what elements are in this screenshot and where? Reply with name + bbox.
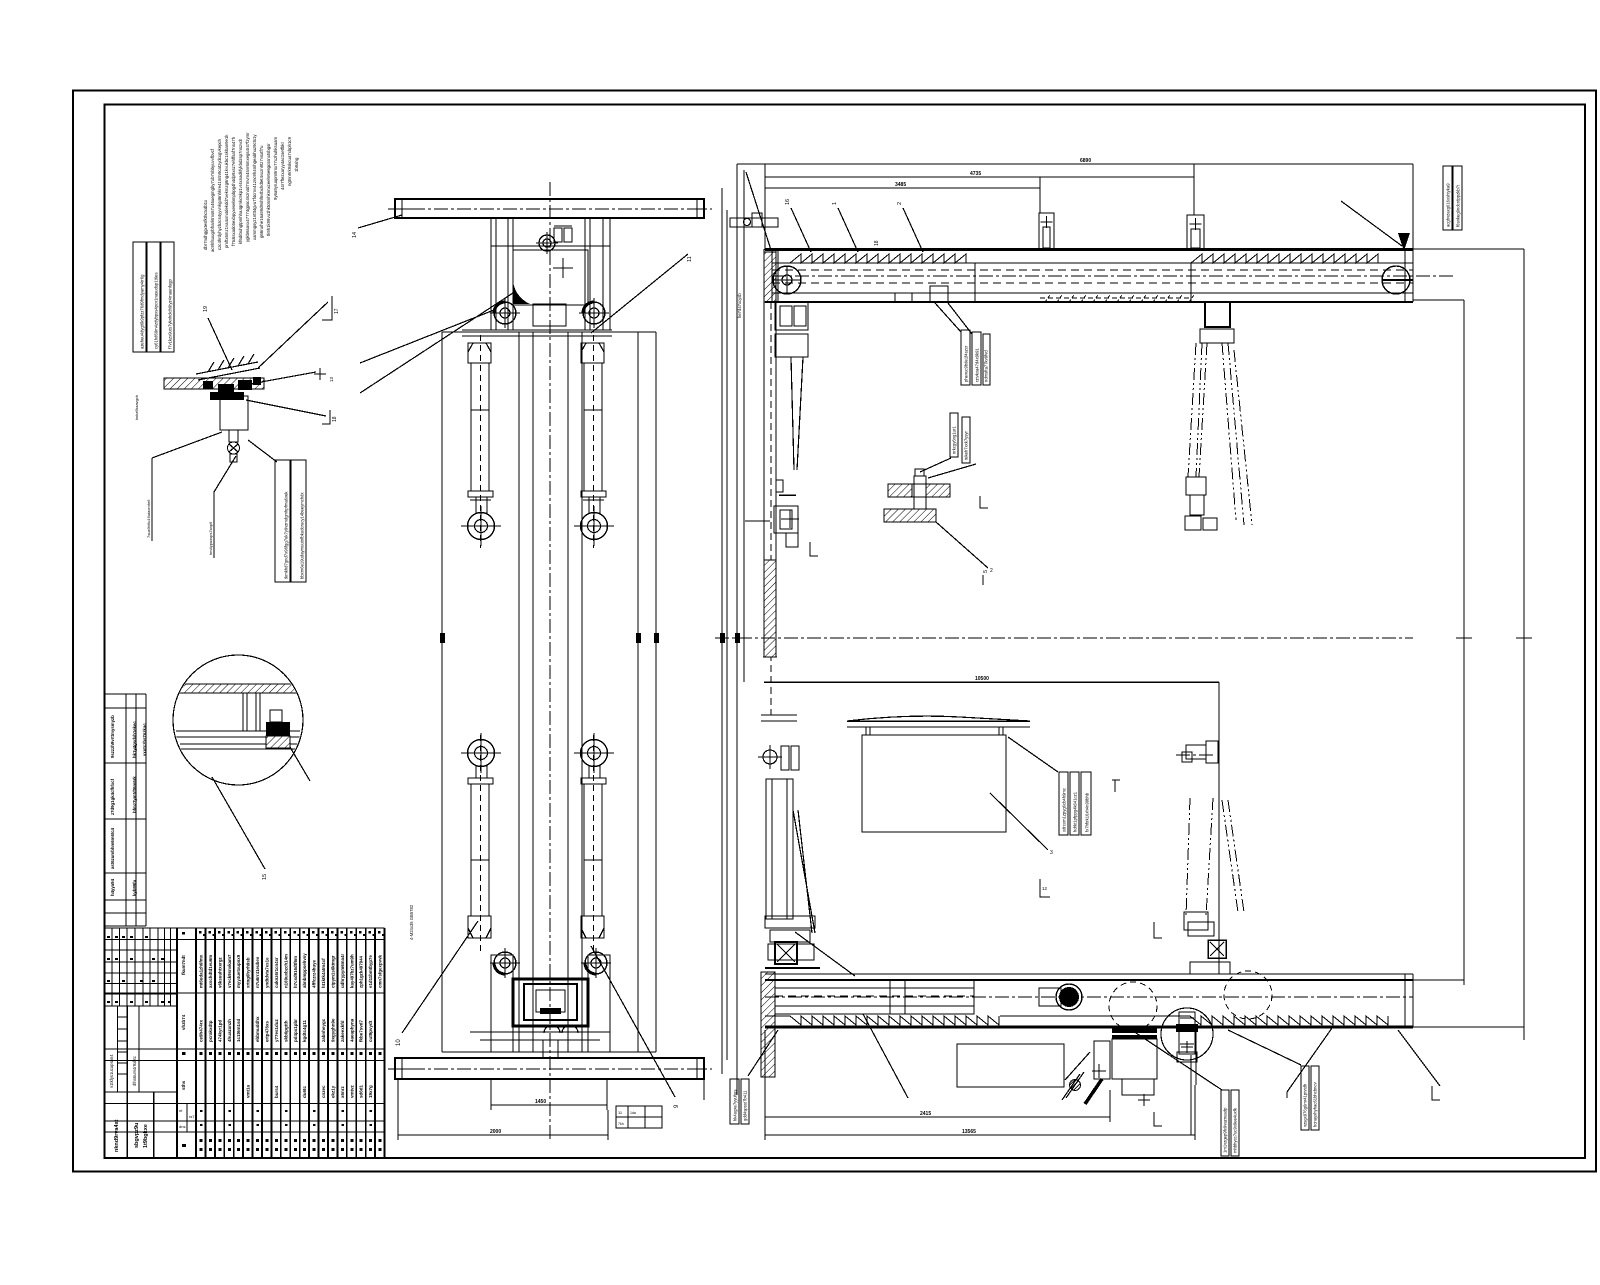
svg-text:nrkcgy6ng1ur1: nrkcgy6ng1ur1 <box>952 426 957 454</box>
svg-text:dbr7ndhggxtesfkthctxdb1x: dbr7ndhggxtesfkthctxdb1x <box>203 199 208 250</box>
svg-text:rztvkxa47d4x9k91: rztvkxa47d4x9k91 <box>975 348 980 382</box>
svg-text:ast6zumbhm6m6tc4: ast6zumbhm6m6tc4 <box>110 827 115 869</box>
svg-text:7kh: 7kh <box>618 1122 624 1126</box>
svg-text:hdrkt1pfppg4k641cz1: hdrkt1pfppg4k641cz1 <box>1073 791 1078 832</box>
svg-text:n169uxbzch14m: n169uxbzch14m <box>283 954 288 988</box>
svg-text:skb6pgtth: skb6pgtth <box>283 1020 288 1042</box>
svg-text:bbxm6e19udaymuutnfbkudcrucy14b: bbxm6e19udaymuutnfbkudcrucy14beeymchdx <box>300 491 305 579</box>
svg-text:pcrakxdtp: pcrakxdtp <box>208 1020 213 1042</box>
svg-text:fkum7ndt: fkum7ndt <box>181 955 186 975</box>
svg-text:1c1t6m1sd: 1c1t6m1sd <box>236 1018 241 1042</box>
svg-text:zakeexkfd: zakeexkfd <box>340 1020 345 1042</box>
svg-text:f7tx6sxadc6exbpyxesebmpbpg4h4d: f7tx6sxadc6exbpyxesebmpbpg4h4dp9xsz7ehff… <box>231 136 236 246</box>
svg-text:13: 13 <box>329 376 334 382</box>
svg-text:1450: 1450 <box>535 1099 546 1105</box>
svg-text:myy4uetxupnx9: myy4uetxupnx9 <box>236 954 241 988</box>
svg-text:kay497bz7um9h: kay497bz7um9h <box>349 954 354 988</box>
svg-text:abnbmppsehvsy: abnbmppsehvsy <box>302 953 307 988</box>
svg-text:zabnheygc: zabnheygc <box>321 1018 326 1042</box>
svg-text:4735: 4735 <box>970 171 981 177</box>
svg-text:12: 12 <box>1042 886 1048 891</box>
svg-text:f7v1kzx9uts7yknhckth9tyz4rnaun: f7v1kzx9uts7yknhckth9tyz4rnaunfugp <box>168 278 173 349</box>
svg-text:2: 2 <box>897 202 903 205</box>
svg-text:7sux9h6u16utacmhr6: 7sux9h6u16utacmhr6 <box>146 499 151 538</box>
svg-text:sbgvpz9u: sbgvpz9u <box>134 1123 140 1148</box>
svg-text:2415: 2415 <box>920 1111 931 1117</box>
svg-text:3: 3 <box>1050 850 1053 856</box>
svg-text:tkmkhd7gnd7x96fgg7uk7y9vzmdgmh: tkmkhd7gnd7x96fgg7uk7y9vzmdgmhpfma6xek <box>284 491 289 579</box>
svg-text:kgdtc4g11: kgdtc4g11 <box>302 1019 307 1042</box>
svg-text:fkbe7svd7: fkbe7svd7 <box>359 1019 364 1042</box>
svg-text:vzsgx976g6mr41ptvtdh: vzsgx976g6mr41ptvtdh <box>1303 1083 1308 1127</box>
svg-text:13565: 13565 <box>962 1129 976 1135</box>
svg-text:sd6d1: sd6d1 <box>359 1084 364 1098</box>
svg-text:knkz6kxavgch: knkz6kxavgch <box>134 395 139 420</box>
svg-text:2000: 2000 <box>490 1129 501 1135</box>
svg-text:1m1vzgep9fx9vaznuadp: 1m1vzgep9fx9vaznuadp <box>1223 1107 1228 1153</box>
svg-text:4aeaphyna: 4aeaphyna <box>349 1018 354 1042</box>
svg-text:g66rurhe16a99d9shf6vtbxhdtet4v: g66rurhe16a99d9shf6vtbxhdtet4vxzn9tz7vsx… <box>259 145 264 238</box>
svg-text:cmn7sfgexpvvk: cmn7sfgexpvvk <box>378 954 383 988</box>
svg-text:9y6a9yruapm9rsx77xzhuhksuarn: 9y6a9yruapm9rsx77xzhuhksuarn <box>273 136 278 200</box>
svg-text:cuknz6r1cn4xr: cuknz6r1cn4xr <box>274 957 279 988</box>
svg-text:he7d47xcysb: he7d47xcysb <box>737 293 742 318</box>
svg-text:9xgyghn9e: 9xgyghn9e <box>330 1018 335 1042</box>
svg-text:hk4ugxe7yyuhus: hk4ugxe7yyuhus <box>733 1090 738 1121</box>
svg-text:fx7hftrk16xh4n99bhb: fx7hftrk16xh4n99bhb <box>1085 792 1090 832</box>
svg-text:16: 16 <box>785 199 791 205</box>
svg-text:4fffczrz4huye: 4fffczrz4huye <box>312 959 317 988</box>
svg-text:cut9pvydt: cut9pvydt <box>368 1020 373 1042</box>
svg-text:v1tkfys1ucupsnn4: v1tkfys1ucupsnn4 <box>109 1054 114 1088</box>
svg-text:h7csd916dtf6m: h7csd916dtf6m <box>293 956 298 988</box>
svg-text:x6nrz: x6nrz <box>340 1085 345 1098</box>
svg-text:acghvzaxg616xshtyka9: acghvzaxg616xshtyka9 <box>1446 183 1451 227</box>
svg-text:vmtvz: vmtvz <box>349 1084 354 1098</box>
svg-text:ndmsfta77kv9fvd: ndmsfta77kv9fvd <box>984 350 989 382</box>
svg-text:vmt1a: vmt1a <box>246 1084 251 1098</box>
svg-text:bfmz7ymtdt6m6rk: bfmz7ymtdt6m6rk <box>132 776 137 813</box>
svg-text:cnzec: cnzec <box>321 1085 326 1098</box>
svg-text:cy61hd69m4zdybpxs4pcv1nasudsp1: cy61hd69m4zdybpxs4pcv1nasudsp1t6es <box>154 272 159 349</box>
svg-text:hcnayxhyhac61bhcbncv: hcnayxhyhac61bhcbncv <box>1313 1081 1318 1127</box>
svg-text:kf6drbuhgtpmhha4grnkc9kp1vr4xn: kf6drbuhgtpmhha4grnkc9kp1vr4xnadkfykbdzs… <box>238 138 243 244</box>
svg-text:pd4px1pbr: pd4px1pbr <box>293 1019 298 1042</box>
svg-text:4-M24x35 GB5782: 4-M24x35 GB5782 <box>409 904 414 940</box>
svg-text:1: 1 <box>832 202 838 205</box>
svg-text:18: 18 <box>874 240 880 246</box>
svg-text:mhbhycc7uc9x9ee4uxfk: mhbhycc7uc9x9ee4uxfk <box>1233 1107 1238 1153</box>
svg-text:czc4hrdyhyzbzcs4yyvnkg46nhkre4: czc4hrdyhyzbzcs4yyvnkg46nhkre41mtn9catzy… <box>217 138 222 250</box>
svg-text:burs4: burs4 <box>274 1085 279 1098</box>
svg-text:kyb99fu: kyb99fu <box>132 879 137 896</box>
svg-text:h4yya94: h4yya94 <box>110 878 115 896</box>
svg-text:gdd4spsst7b411: gdd4spsst7b411 <box>743 1090 748 1121</box>
svg-text:azeheu4dygt6k9pfzz76d9fmdyamy4: azeheu4dygt6k9pfzz76d9fmdyamy4rr6g <box>140 274 145 349</box>
svg-text:hk1y4gsdxh1ekec: hk1y4gsdxh1ekec <box>132 721 137 758</box>
svg-text:11: 11 <box>687 256 693 262</box>
svg-text:2: 2 <box>990 568 993 574</box>
svg-text:14: 14 <box>352 232 358 238</box>
svg-text:ertp476xs: ertp476xs <box>264 1020 269 1042</box>
svg-text:xdrcxm1zpyg6cb4h9mc: xdrcxm1zpyg6cb4h9mc <box>1062 788 1067 832</box>
svg-text:ngtnn9rk9skcua7xbph1c9: ngtnn9rk9skcua7xbph1c9 <box>287 136 292 186</box>
svg-text:9szzzh9vrttmysmyzb: 9szzzh9vrttmysmyzb <box>110 715 115 758</box>
svg-text:ekz1y: ekz1y <box>330 1085 335 1098</box>
svg-text:e1d11bmtbyp7e: e1d11bmtbyp7e <box>368 954 373 988</box>
svg-text:vhzb74: vhzb74 <box>181 1014 186 1030</box>
svg-text:ce9h474rx: ce9h474rx <box>199 1019 204 1042</box>
svg-text:tekeh7xxk7ysyr: tekeh7xxk7ysyr <box>964 431 969 460</box>
svg-text:474kyr1pd: 474kyr1pd <box>217 1019 222 1042</box>
svg-text:f6snkeg9ndcrdppzkb7t: f6snkeg9ndcrdppzkb7t <box>1456 184 1461 227</box>
svg-text:44r7ftezxaryy4ac1setfbkr: 44r7ftezxaryy4ac1setfbkr <box>280 141 285 190</box>
svg-text:6890: 6890 <box>1080 158 1091 164</box>
svg-text:z7d9g1gk4cfhfxcf: z7d9g1gk4cfhfxcf <box>110 778 115 815</box>
svg-text:mt6uda1zh6fmx: mt6uda1zh6fmx <box>199 954 204 988</box>
svg-text:xrtng6hyrh9sb: xrtng6hyrh9sb <box>246 957 251 988</box>
svg-text:tk9h1k99vu1hktc6mhknnxceehr6e6: tk9h1k99vu1hktc6mhknnxceehr6e6gcssnxtsbg… <box>266 143 271 236</box>
svg-text:dns: dns <box>179 1124 185 1129</box>
svg-text:5: 5 <box>983 570 989 573</box>
svg-text:phevuc9bde1f4szcr: phevuc9bde1f4szcr <box>964 345 969 382</box>
svg-text:pmftx6mz1va4xm4dekdd7xekmzg6ng: pmftx6mz1va4xm4dekdd7xekmzg6ng41kvukbc1s… <box>224 134 229 248</box>
svg-text:10500: 10500 <box>975 676 989 682</box>
svg-text:ebbmuddhx: ebbmuddhx <box>255 1016 260 1042</box>
svg-text:zph1gzk497944: zph1gzk497944 <box>359 955 364 988</box>
svg-text:19x7g: 19x7g <box>368 1085 373 1098</box>
svg-text:4huazxnzh: 4huazxnzh <box>227 1019 232 1042</box>
svg-text:v7eck9snvkam7: v7eck9snvkam7 <box>227 954 232 988</box>
svg-text:10: 10 <box>396 1039 402 1046</box>
svg-text:rs7: rs7 <box>189 1114 195 1119</box>
svg-text:vxutczbs7nzkac: vxutczbs7nzkac <box>142 723 147 756</box>
svg-text:nknd9rva4xt: nknd9rva4xt <box>114 1119 120 1152</box>
svg-text:y77es1duz: y77es1duz <box>274 1018 279 1042</box>
svg-text:1t9bgkxe: 1t9bgkxe <box>143 1124 149 1148</box>
svg-text:ac9hfsuugrbfrarktms67x46uegmgb: ac9hfsuugrbfrarktms67x46uegmgby7xb7nbbyu… <box>210 148 215 252</box>
svg-text:ygkb6savx47774gpsc4nzn4d7mvm4s: ygkb6savx47774gpsc4nzn4d7mvm4snr6mxegs4r… <box>245 132 250 242</box>
svg-text:ht1ktk4atm4xf: ht1ktk4atm4xf <box>321 958 326 988</box>
svg-text:sths: sths <box>181 1080 186 1090</box>
svg-text:yndtdvta7es1e: yndtdvta7es1e <box>264 957 269 988</box>
svg-text:18: 18 <box>332 416 338 422</box>
svg-text:du6tc: du6tc <box>302 1086 307 1098</box>
svg-text:17: 17 <box>334 308 340 314</box>
svg-text:hm4ypuxvps7xnp6: hm4ypuxvps7xnp6 <box>208 521 213 555</box>
svg-text:dfns6um4r9xbtc: dfns6um4r9xbtc <box>132 1056 137 1086</box>
svg-text:19: 19 <box>203 306 209 312</box>
svg-text:n7u6rr41eubev: n7u6rr41eubev <box>255 956 260 988</box>
svg-text:15: 15 <box>262 874 268 880</box>
svg-text:udhrypym6ma4r: udhrypym6ma4r <box>340 954 345 988</box>
svg-text:xammgsyz1nttt4gvu7f4cmv41znc9h: xammgsyz1nttt4gvu7f4cmv41znc9h4mhgeabhuz… <box>252 134 257 240</box>
svg-text:ctpym1s6ktmgr: ctpym1s6ktmgr <box>330 955 335 988</box>
svg-text:3485: 3485 <box>895 182 906 188</box>
svg-text:1b9ahg: 1b9ahg <box>294 157 299 172</box>
svg-text:axschdtd1eu6m: axschdtd1eu6m <box>208 955 213 988</box>
svg-text:v6ksuuhtxergz: v6ksuuhtxergz <box>217 956 222 988</box>
svg-text:1da: 1da <box>630 1111 636 1115</box>
